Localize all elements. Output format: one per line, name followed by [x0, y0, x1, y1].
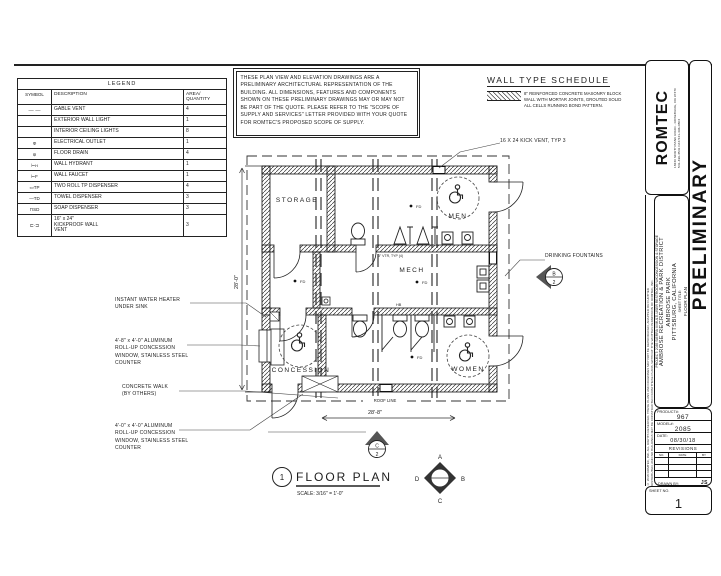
legend-cell-desc: TWO ROLL TP DISPENSER	[52, 182, 184, 192]
callout-water-heater: INSTANT WATER HEATER UNDER SINK	[115, 297, 195, 312]
legend-col-description: DESCRIPTION	[52, 90, 184, 104]
notes-box: THESE PLAN VIEW AND ELEVATION DRAWINGS A…	[233, 68, 420, 138]
legend-row: —··—GABLE VENT4	[18, 105, 226, 116]
romtec-phone: 541-496-3541 FAX 541-496-0803	[677, 88, 681, 168]
notes-text: THESE PLAN VIEW AND ELEVATION DRAWINGS A…	[236, 71, 418, 136]
svg-text:2: 2	[553, 280, 556, 286]
partition	[407, 227, 413, 244]
drawn-by-value: JS	[701, 480, 708, 486]
legend-cell-sym	[18, 116, 52, 126]
fixtures-women	[353, 315, 475, 352]
legend-row: —TDTOWEL DISPENSER3	[18, 193, 226, 204]
svg-text:C: C	[375, 444, 379, 450]
stall-partitions	[382, 315, 434, 352]
rev-col-by: BY	[697, 453, 711, 457]
legend-cell-sym: —··—	[18, 105, 52, 115]
romtec-address-block: 18240 NORTH BANK ROAD - ROSEBURG, OR 974…	[673, 88, 681, 168]
legend-row: ⊢ʜWALL HYDRANT1	[18, 160, 226, 171]
svg-text:FD: FD	[300, 279, 305, 284]
date-value: 08/30/18	[657, 438, 709, 444]
sheet-number-box: SHEET NO. 1	[645, 486, 712, 515]
legend-cell-desc: 16" x 24" KICKPROOF WALL VENT	[52, 215, 184, 235]
dim-width-left: 28'-0"	[234, 275, 240, 289]
urinal	[417, 227, 429, 244]
lavatory	[462, 232, 473, 244]
legend-row: ▭TPTWO ROLL TP DISPENSER4	[18, 182, 226, 193]
legend-cell-sym	[18, 127, 52, 137]
drinking-fountains	[477, 266, 489, 292]
room-label-mech: MECH	[399, 267, 424, 274]
door-women-inner	[352, 315, 374, 337]
legend-cell-qty: 1	[184, 138, 226, 148]
legend-cell-desc: INTERIOR CEILING LIGHTS	[52, 127, 184, 137]
legend-table: LEGEND SYMBOL DESCRIPTION AREA/ QUANTITY…	[17, 78, 227, 237]
lavatory	[464, 316, 475, 327]
legend-row: EXTERIOR WALL LIGHT1	[18, 116, 226, 127]
vtr-note: 3" VTR, TYP (4)	[378, 254, 403, 258]
legend-row: ΦELECTRICAL OUTLET1	[18, 138, 226, 149]
callout-kick-vent: 16 X 24 KICK VENT, TYP 3	[500, 138, 640, 145]
leader-drinking-fountains	[505, 260, 545, 276]
stall-doors	[382, 337, 422, 350]
rev-col-date: DATE	[669, 453, 697, 457]
legend-row: ⊢FWALL FAUCET1	[18, 171, 226, 182]
legend-cell-qty: 8	[184, 127, 226, 137]
drawn-by-label: DRAWN BY:	[658, 482, 679, 486]
callout-concrete-walk: CONCRETE WALK (BY OTHERS)	[122, 384, 184, 399]
callout-window-2: 4'-0" x 4'-0" ALUMINUM ROLL-UP CONCESSIO…	[115, 423, 193, 452]
room-label-women: WOMEN	[451, 366, 484, 373]
sheet-title: FLOOR PLAN	[683, 287, 688, 316]
legend-cell-qty: 1	[184, 171, 226, 181]
leader-water-heater	[190, 303, 266, 317]
legend-cell-desc: EXTERIOR WALL LIGHT	[52, 116, 184, 126]
legend-cell-desc: FLOOR DRAIN	[52, 149, 184, 159]
svg-text:FD: FD	[416, 204, 421, 209]
legend-cell-desc: WALL HYDRANT	[52, 160, 184, 170]
preliminary-watermark: PRELIMINARY	[690, 158, 712, 310]
door-men-exterior	[493, 182, 523, 212]
toilet-bowl	[352, 223, 365, 239]
legend-cell-sym: ⊏·⊐	[18, 215, 52, 235]
door-concession-exterior	[272, 392, 298, 418]
wall-type-entry: 8" REINFORCED CONCRETE MASONRY BLOCK WAL…	[524, 91, 628, 110]
wall-type-schedule-title: WALL TYPE SCHEDULE	[487, 75, 610, 87]
legend-cell-qty: 3	[184, 215, 226, 235]
legend-row: ⊚FLOOR DRAIN4	[18, 149, 226, 160]
legend-cell-qty: 4	[184, 182, 226, 192]
legend-cell-qty: 1	[184, 116, 226, 126]
romtec-logo: ROMTEC	[654, 90, 672, 165]
legend-row: ⊓SDSOAP DISPENSER3	[18, 204, 226, 215]
toilet-tank	[351, 239, 365, 245]
legend-col-qty: AREA/ QUANTITY	[184, 90, 226, 104]
svg-text:FD: FD	[417, 355, 422, 360]
svg-text:B: B	[461, 477, 465, 483]
legend-cell-desc: GABLE VENT	[52, 105, 184, 115]
legend-cell-qty: 3	[184, 204, 226, 214]
legend-row: INTERIOR CEILING LIGHTS8	[18, 127, 226, 138]
svg-text:D: D	[415, 477, 420, 483]
drawing-title: FLOOR PLAN	[296, 470, 392, 484]
window-west	[259, 330, 267, 362]
legend-cell-sym: ⊓SD	[18, 204, 52, 214]
legend-cell-sym: —TD	[18, 193, 52, 203]
masonry-hatch-swatch	[487, 91, 521, 101]
section-marker-c2: C 2	[365, 431, 389, 458]
legend-cell-desc: WALL FAUCET	[52, 171, 184, 181]
leader-window-1	[187, 345, 260, 346]
section-marker-b2: B 2	[536, 265, 563, 289]
svg-text:FD: FD	[422, 280, 427, 285]
svg-text:A: A	[438, 455, 442, 461]
rev-col-no: NO.	[655, 453, 669, 457]
door-women-exterior	[493, 336, 523, 366]
legend-cell-sym: ⊢ʜ	[18, 160, 52, 170]
sheet-title-label: SHEET TITLE:	[678, 290, 682, 312]
legend-cell-desc: TOWEL DISPENSER	[52, 193, 184, 203]
door-storage	[274, 252, 300, 278]
title-block: ROMTEC 18240 NORTH BANK ROAD - ROSEBURG,…	[645, 60, 712, 515]
drawing-scale: SCALE: 3/16" = 1'-0"	[297, 491, 344, 497]
dimensions	[240, 166, 456, 421]
callout-window-1: 4'-8" x 4'-0" ALUMINUM ROLL-UP CONCESSIO…	[115, 338, 193, 367]
roof-line-label: ROOF LINE	[374, 398, 397, 403]
model-value: 2085	[657, 426, 709, 433]
info-table: PRODUCT#: 967 MODEL#: 2085 DATE: 08/30/1…	[654, 408, 712, 486]
legend-cell-qty: 4	[184, 105, 226, 115]
legend-cell-qty: 4	[184, 149, 226, 159]
product-value: 967	[657, 414, 709, 421]
legend-cell-sym: ⊢F	[18, 171, 52, 181]
svg-text:2: 2	[376, 452, 379, 458]
lavatory	[442, 232, 453, 244]
legend-cell-sym: ▭TP	[18, 182, 52, 192]
legend-title: LEGEND	[18, 79, 226, 90]
legend-row: ⊏·⊐16" x 24" KICKPROOF WALL VENT3	[18, 215, 226, 235]
room-label-storage: STORAGE	[276, 197, 318, 204]
product-row: PRODUCT#: 967	[655, 409, 711, 421]
legend-cell-desc: ELECTRICAL OUTLET	[52, 138, 184, 148]
drawing-sheet: FD FD FD FD STORAGE MEN MECH CONCESSION …	[0, 0, 721, 576]
fixtures-men	[351, 223, 473, 245]
park-name: AMBROSE PARK	[666, 277, 672, 327]
dim-width-bottom: 28'-8"	[368, 410, 382, 416]
drawing-number: 1	[280, 473, 285, 482]
romtec-logo-box: ROMTEC 18240 NORTH BANK ROAD - ROSEBURG,…	[645, 60, 689, 195]
callout-drinking-fountains: DRINKING FOUNTAINS	[545, 253, 615, 260]
hose-bib-label: HB	[396, 303, 402, 307]
legend-col-symbol: SYMBOL	[18, 90, 52, 104]
orientation-marker: A B C D	[415, 455, 465, 505]
lavatory	[444, 316, 455, 327]
client-name: AMBROSE RECREATION & PARK DISTRICT	[659, 237, 665, 366]
sheet-no-value: 1	[646, 496, 711, 511]
legend-cell-sym: ⊚	[18, 149, 52, 159]
preliminary-stamp-box: PRELIMINARY	[689, 60, 712, 408]
legend-cell-qty: 1	[184, 160, 226, 170]
legend-header-row: SYMBOL DESCRIPTION AREA/ QUANTITY	[18, 90, 226, 105]
sheet-no-label: SHEET NO.	[649, 489, 669, 493]
legend-cell-desc: SOAP DISPENSER	[52, 204, 184, 214]
drawing-title-block: 1 FLOOR PLAN SCALE: 3/16" = 1'-0"	[273, 468, 393, 498]
svg-text:C: C	[438, 499, 443, 505]
revisions-header: REVISIONS	[655, 445, 711, 453]
date-row: DATE: 08/30/18	[655, 433, 711, 445]
wall-type-schedule: WALL TYPE SCHEDULE 8" REINFORCED CONCRET…	[487, 70, 635, 110]
urinal	[394, 227, 406, 244]
legend-cell-qty: 3	[184, 193, 226, 203]
leader-window-2	[179, 394, 303, 430]
room-label-concession: CONCESSION	[272, 367, 331, 374]
model-row: MODEL#: 2085	[655, 421, 711, 433]
romtec-address: 18240 NORTH BANK ROAD - ROSEBURG, OR 974…	[673, 88, 677, 168]
legend-cell-sym: Φ	[18, 138, 52, 148]
leader-kick-vent	[439, 143, 500, 168]
project-info-box: PROJECT: 2085 SIERRA III MULTI-USER REST…	[654, 195, 689, 408]
room-label-men: MEN	[449, 213, 468, 220]
